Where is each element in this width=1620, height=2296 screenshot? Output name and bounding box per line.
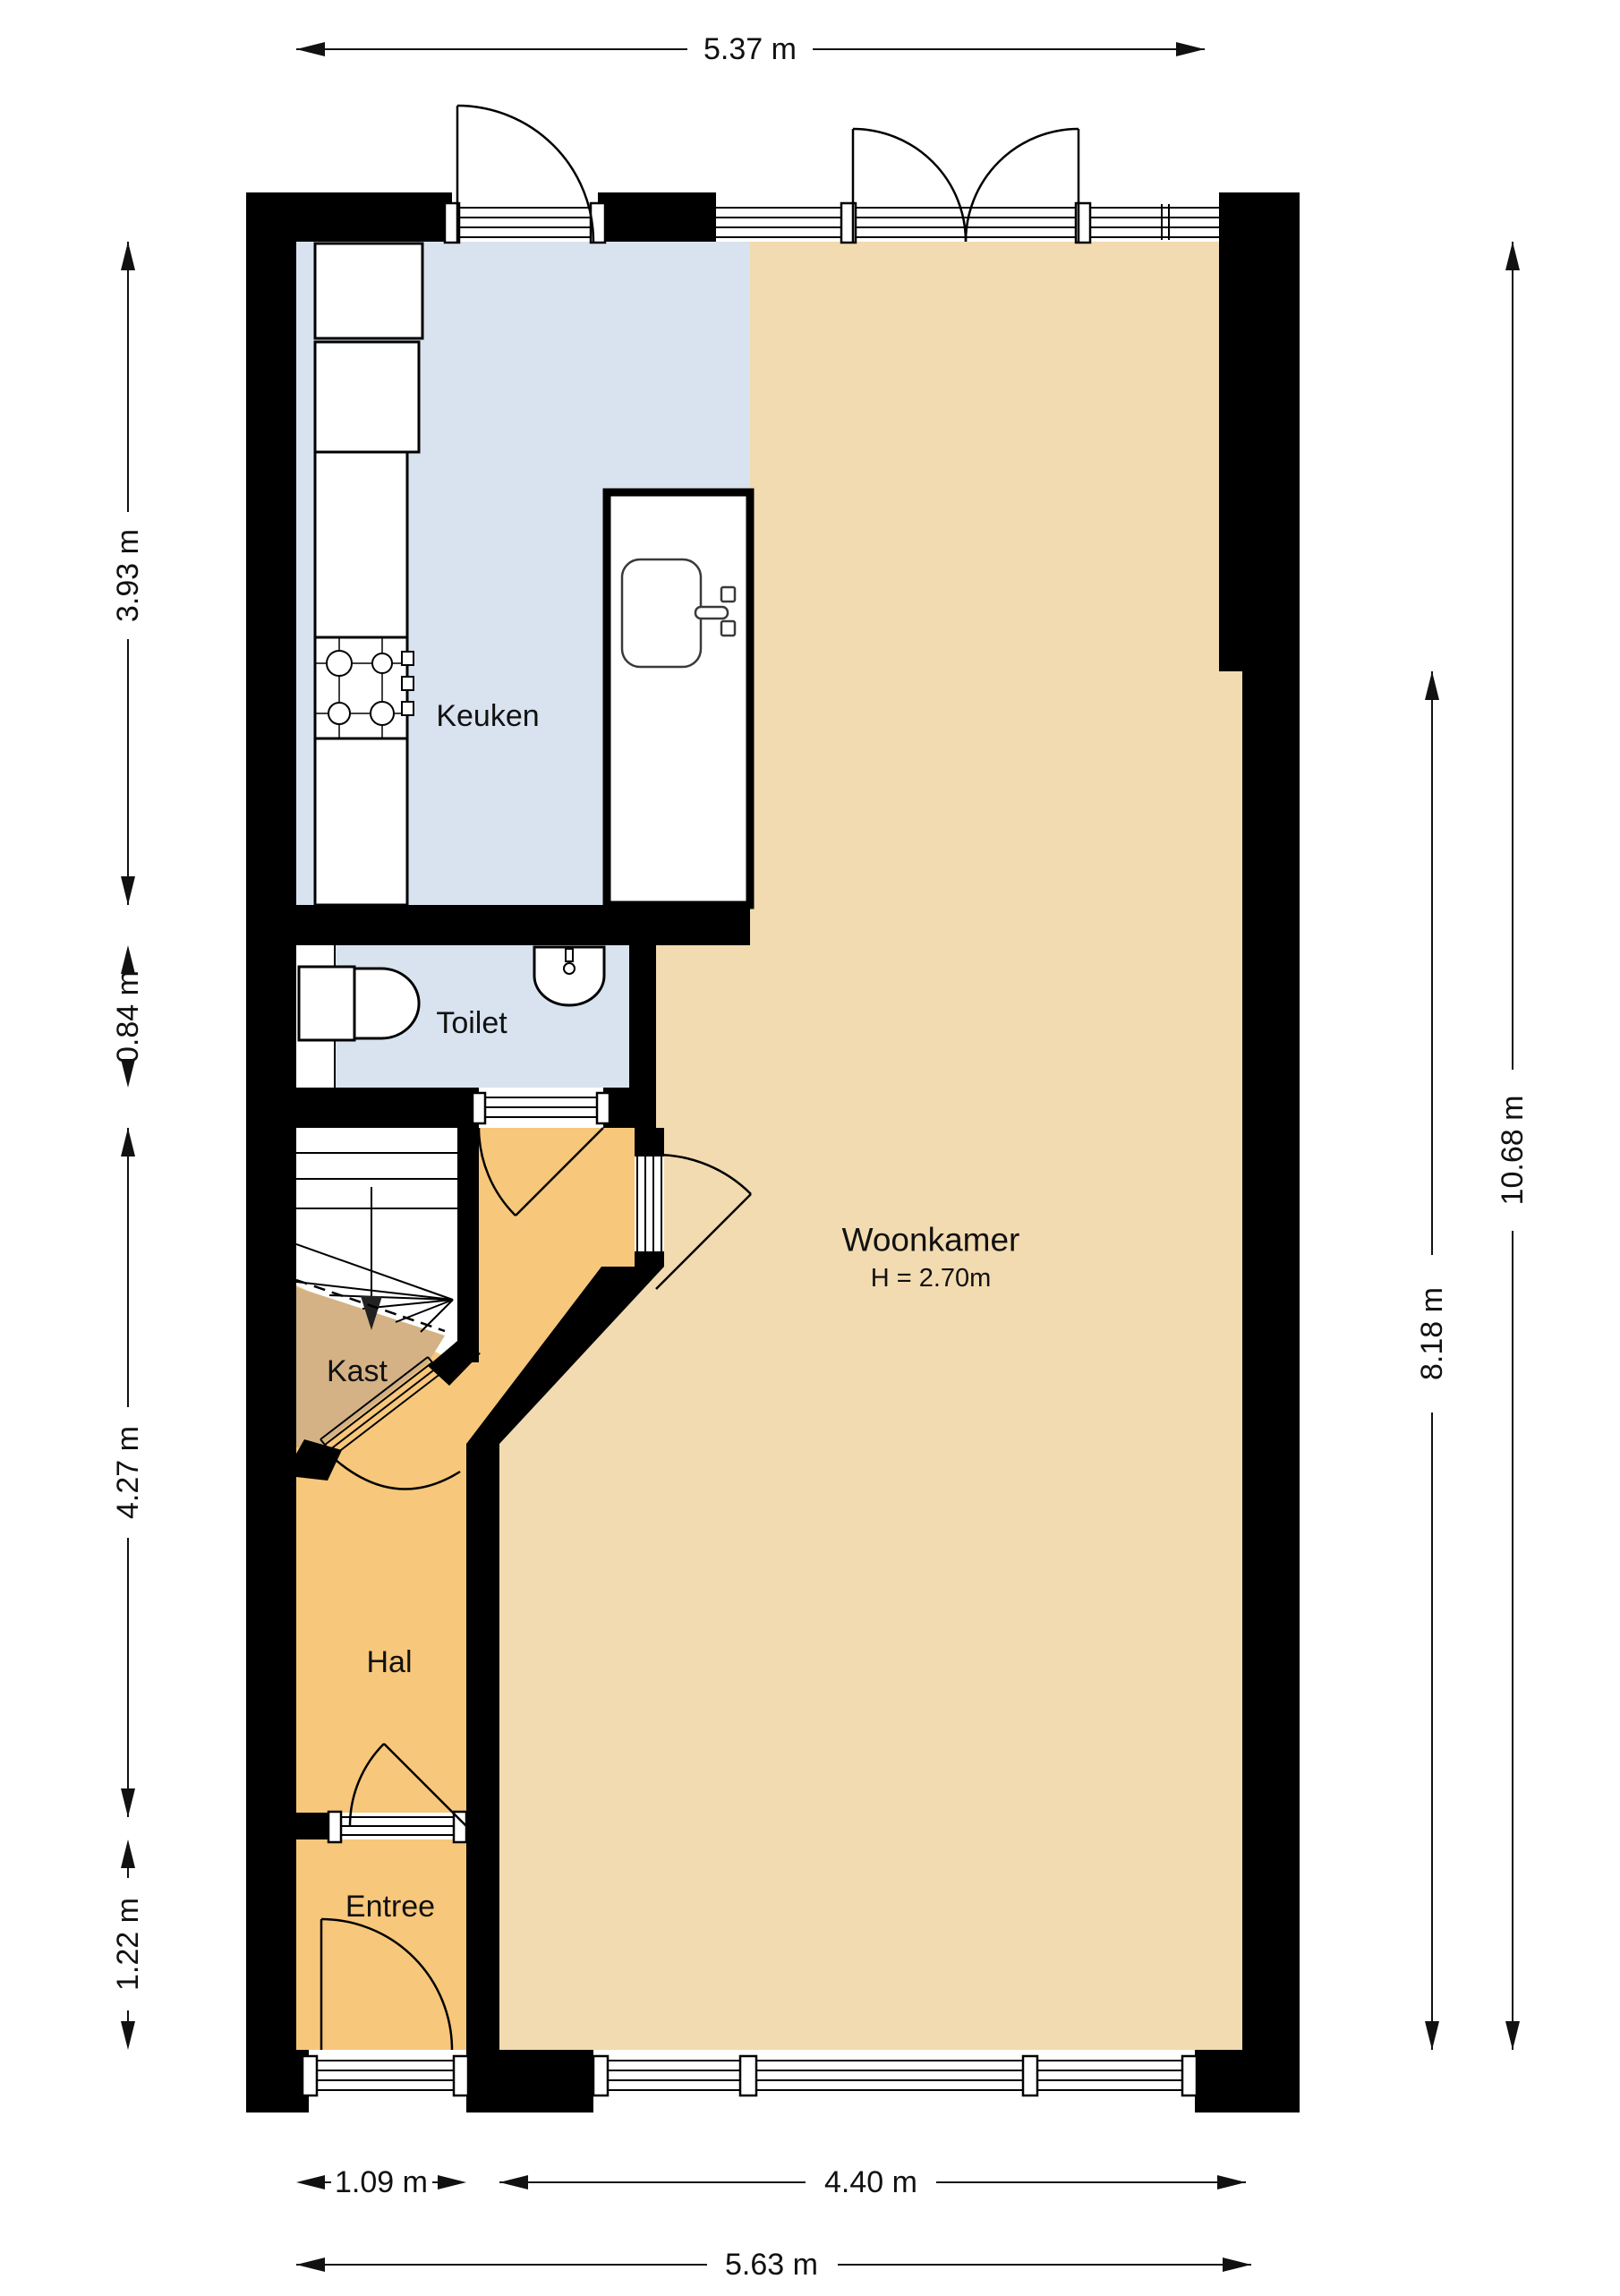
woonkamer-height-note: H = 2.70m	[871, 1264, 992, 1293]
french-doors	[853, 129, 1079, 242]
wall-left	[246, 192, 296, 2112]
dim-bottom-3: 5.63 m	[296, 2248, 1251, 2282]
top-window-band	[452, 204, 1219, 240]
hal-label: Hal	[366, 1645, 412, 1679]
floor-areas	[296, 242, 1242, 2050]
dim-bottom-3-label: 5.63 m	[725, 2248, 818, 2282]
dim-left-2-label: 0.84 m	[111, 970, 145, 1063]
toilet-basin-icon	[534, 947, 604, 1005]
wall-hal-right	[466, 1444, 499, 2050]
woonkamer-label: Woonkamer	[842, 1222, 1020, 1259]
kast-label: Kast	[327, 1354, 388, 1388]
wall-kitchen-toilet	[246, 905, 750, 945]
top-wall-openings	[445, 106, 1219, 243]
wall-stairs-right	[457, 1128, 479, 1362]
dim-left-1: 3.93 m	[111, 242, 145, 905]
dim-bottom-1-label: 1.09 m	[335, 2165, 428, 2199]
wall-right-lower	[1242, 671, 1300, 2112]
dim-left-2: 0.84 m	[111, 945, 145, 1088]
dim-right-2-label: 8.18 m	[1415, 1287, 1449, 1380]
wall-top-left	[246, 192, 452, 242]
kitchen-island	[607, 492, 750, 905]
dim-right-2: 8.18 m	[1415, 671, 1449, 2050]
dim-left-4: 1.22 m	[111, 1839, 145, 2050]
dim-right-1: 10.68 m	[1496, 242, 1530, 2050]
stove-icon	[315, 637, 414, 738]
dim-right-1-label: 10.68 m	[1496, 1096, 1530, 1206]
floorplan-page: Keuken Toilet Kast Hal Entree Woonkamer …	[0, 0, 1620, 2292]
dim-top-label: 5.37 m	[703, 32, 797, 66]
dim-left-3-label: 4.27 m	[111, 1426, 145, 1519]
kitchen-cabinet-1	[315, 243, 422, 338]
dim-bottom-2: 4.40 m	[499, 2165, 1246, 2199]
kitchen-cabinet-2	[315, 342, 419, 452]
wall-bottom-pier	[466, 2050, 593, 2112]
wall-right-upper	[1219, 192, 1300, 671]
dim-left-3: 4.27 m	[111, 1128, 145, 1817]
dim-bottom-1: 1.09 m	[296, 2165, 466, 2199]
wall-toilet-bottom-left	[296, 1088, 479, 1128]
dim-left-4-label: 1.22 m	[111, 1898, 145, 1991]
wall-toilet-bottom-right	[603, 1088, 656, 1128]
dim-top: 5.37 m	[296, 32, 1205, 66]
toilet-label: Toilet	[436, 1006, 507, 1040]
wall-top-pier	[598, 192, 716, 242]
keuken-label: Keuken	[436, 699, 539, 733]
dim-left-1-label: 3.93 m	[111, 529, 145, 622]
wall-doorpost-bottom	[635, 1251, 664, 1267]
dim-bottom-2-label: 4.40 m	[824, 2165, 917, 2199]
floorplan-drawing: Keuken Toilet Kast Hal Entree Woonkamer …	[0, 0, 1620, 2292]
wall-toilet-right	[629, 945, 656, 1088]
toilet-fixture-icon	[299, 967, 419, 1040]
wall-bottom-left	[246, 2050, 309, 2112]
wall-doorpost-top	[635, 1128, 664, 1157]
kitchen-door	[457, 106, 593, 242]
entree-label: Entree	[345, 1890, 435, 1924]
wall-bottom-right	[1195, 2050, 1300, 2112]
